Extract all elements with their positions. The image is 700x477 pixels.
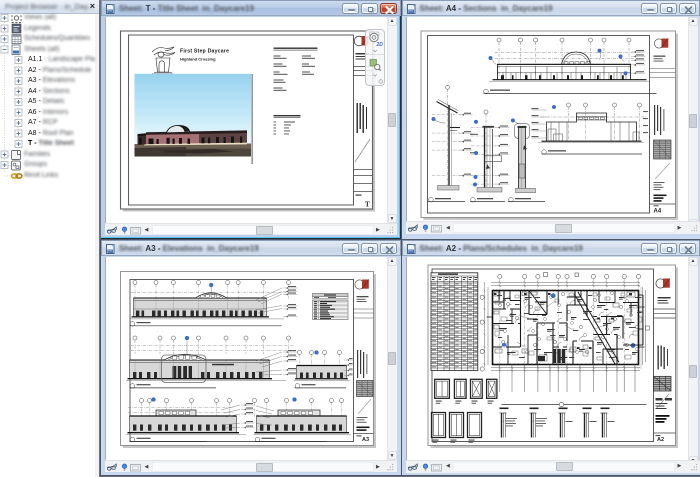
svg-text:First Step Daycare: First Step Daycare [180, 49, 229, 55]
svg-text:A4: A4 [654, 209, 662, 215]
svg-text:2D: 2D [376, 42, 384, 48]
svg-text:Highland Crossing: Highland Crossing [180, 57, 216, 62]
svg-text:T: T [365, 201, 370, 209]
svg-text:A3: A3 [362, 437, 369, 443]
svg-text:A2: A2 [657, 437, 664, 443]
